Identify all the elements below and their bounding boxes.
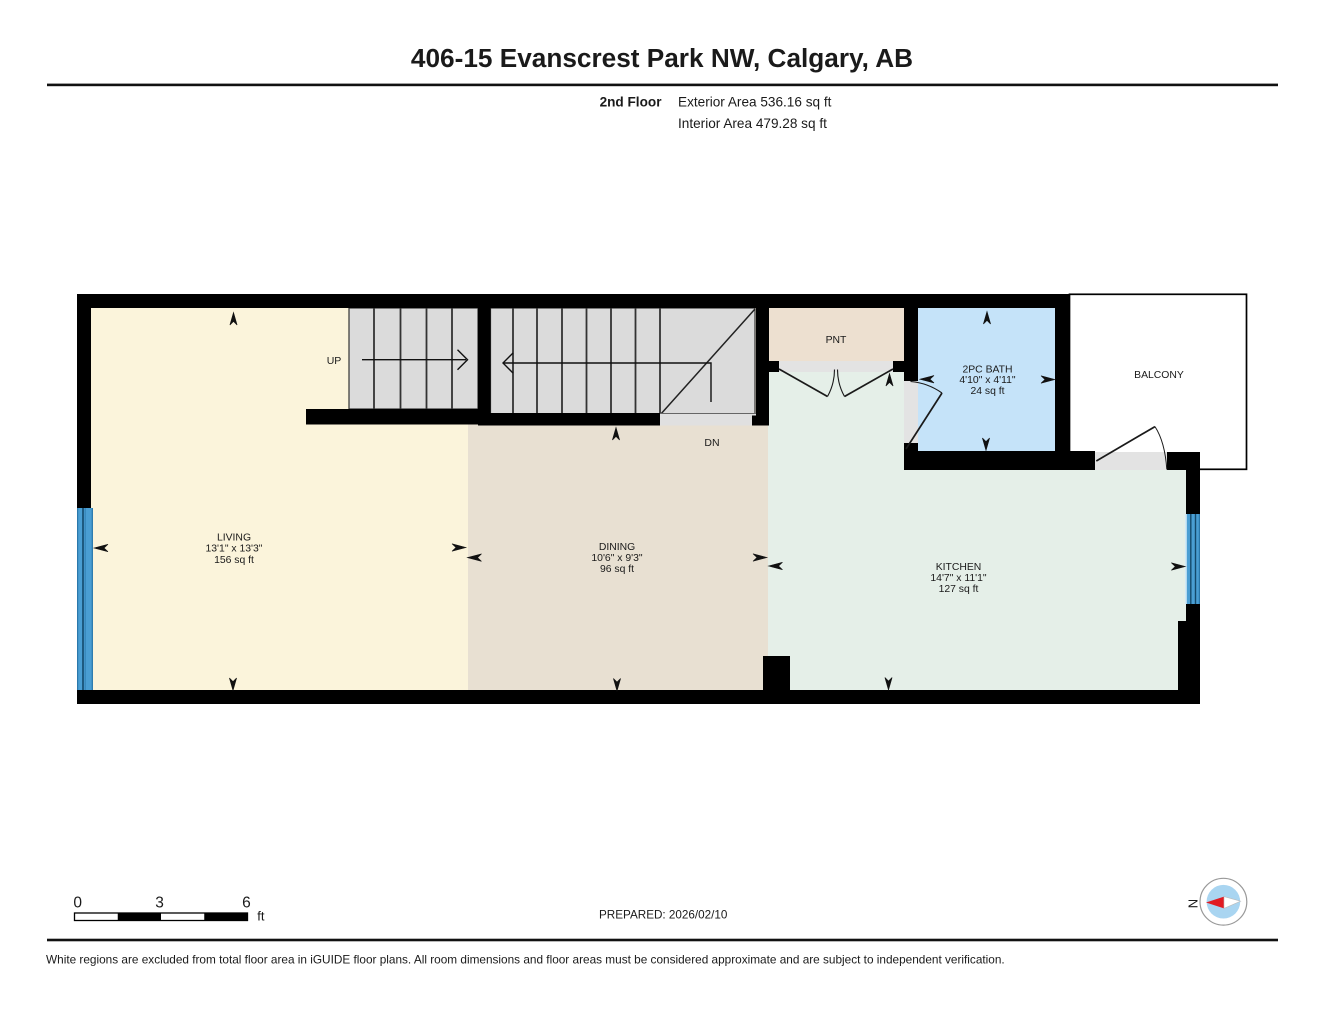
svg-text:PREPARED: 2026/02/10: PREPARED: 2026/02/10 <box>599 909 728 922</box>
svg-text:0: 0 <box>73 894 82 911</box>
svg-text:2PC BATH: 2PC BATH <box>962 365 1012 376</box>
svg-text:13'1" x 13'3": 13'1" x 13'3" <box>206 544 263 555</box>
svg-text:3: 3 <box>155 894 164 911</box>
svg-text:ft: ft <box>257 909 265 924</box>
svg-text:14'7" x 11'1": 14'7" x 11'1" <box>930 573 987 584</box>
svg-text:2nd Floor: 2nd Floor <box>600 95 663 110</box>
svg-text:127 sq ft: 127 sq ft <box>939 584 979 595</box>
svg-text:BALCONY: BALCONY <box>1134 370 1184 381</box>
svg-text:LIVING: LIVING <box>217 533 251 544</box>
svg-text:10'6" x 9'3": 10'6" x 9'3" <box>591 553 643 564</box>
svg-text:PNT: PNT <box>826 335 847 346</box>
svg-text:DN: DN <box>704 437 719 449</box>
svg-text:4'10" x 4'11": 4'10" x 4'11" <box>959 375 1016 386</box>
svg-text:6: 6 <box>242 894 251 911</box>
svg-text:UP: UP <box>327 355 342 367</box>
svg-text:N: N <box>1186 899 1201 908</box>
svg-text:KITCHEN: KITCHEN <box>936 562 982 573</box>
svg-text:Exterior Area 536.16 sq ft: Exterior Area 536.16 sq ft <box>678 95 832 110</box>
svg-text:Interior Area 479.28 sq ft: Interior Area 479.28 sq ft <box>678 116 827 131</box>
svg-text:156 sq ft: 156 sq ft <box>214 555 254 566</box>
svg-text:406-15 Evanscrest Park NW, Cal: 406-15 Evanscrest Park NW, Calgary, AB <box>411 43 913 73</box>
svg-text:White regions are excluded fro: White regions are excluded from total fl… <box>46 953 1005 967</box>
svg-text:DINING: DINING <box>599 542 635 553</box>
svg-text:96 sq ft: 96 sq ft <box>600 564 634 575</box>
svg-text:24 sq ft: 24 sq ft <box>970 386 1004 397</box>
